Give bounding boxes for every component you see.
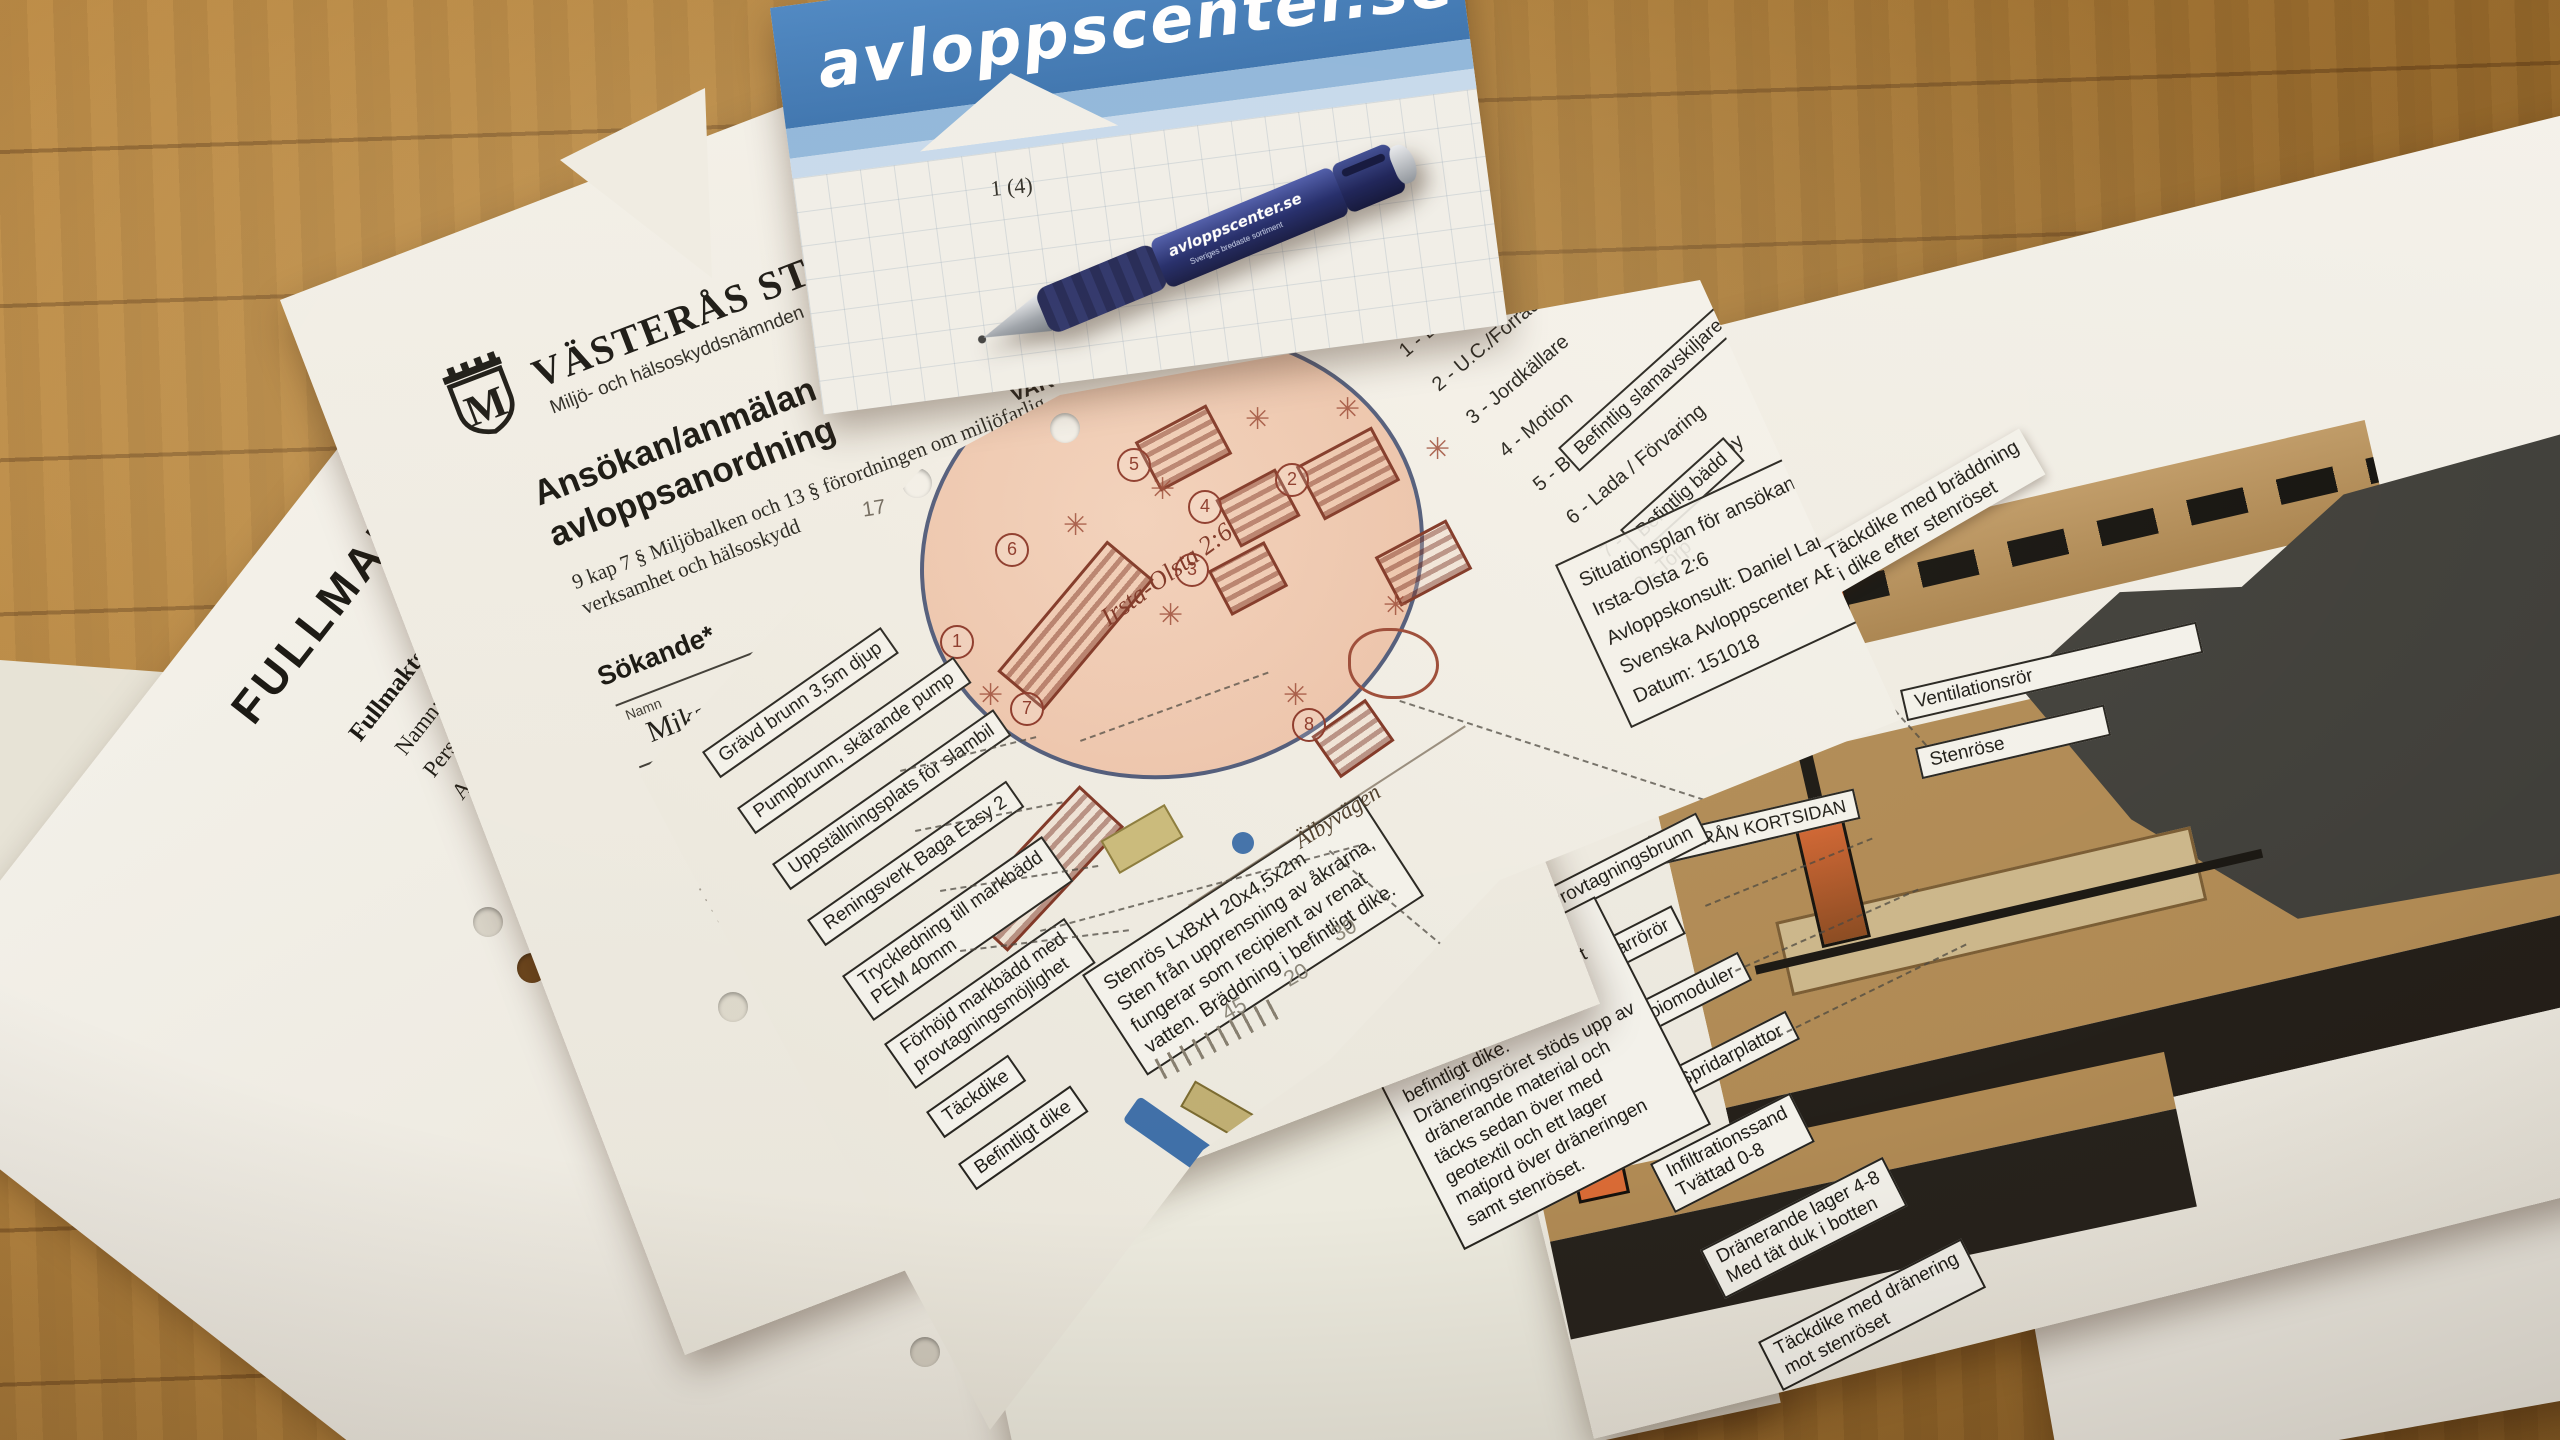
- circled-number: 8: [1292, 708, 1326, 742]
- banner-page-number: 1 (4): [989, 172, 1033, 202]
- circled-number: 1: [940, 625, 974, 659]
- pen-ballpoint: [977, 334, 987, 344]
- tree-icon: ✳: [1425, 432, 1450, 467]
- tree-icon: ✳: [1150, 472, 1175, 507]
- punch-hole: [910, 1337, 940, 1367]
- tree-icon: ✳: [1158, 598, 1183, 633]
- punch-hole: [718, 992, 748, 1022]
- pump-marker-blue-dot: [1232, 832, 1254, 854]
- circled-number: 6: [995, 533, 1029, 567]
- circled-number: 7: [1010, 692, 1044, 726]
- coat-of-arms-icon: M: [432, 342, 533, 455]
- tree-icon: ✳: [1245, 402, 1270, 437]
- bed-marker-khaki: [1100, 804, 1183, 874]
- pond-outline: [1348, 628, 1439, 699]
- tree-icon: ✳: [1383, 588, 1408, 623]
- circled-number: 5: [1117, 448, 1151, 482]
- form-section-sokande: Sökande*: [593, 620, 719, 693]
- tree-icon: ✳: [978, 678, 1003, 713]
- tree-icon: ✳: [1063, 508, 1088, 543]
- punch-hole: [473, 907, 503, 937]
- photo-scene: FULLMAKT Fullmaktsgivare: Namn: Pers nr:…: [0, 0, 2560, 1440]
- punch-hole: [1050, 413, 1080, 443]
- tree-icon: ✳: [1335, 392, 1360, 427]
- circled-number: 2: [1275, 463, 1309, 497]
